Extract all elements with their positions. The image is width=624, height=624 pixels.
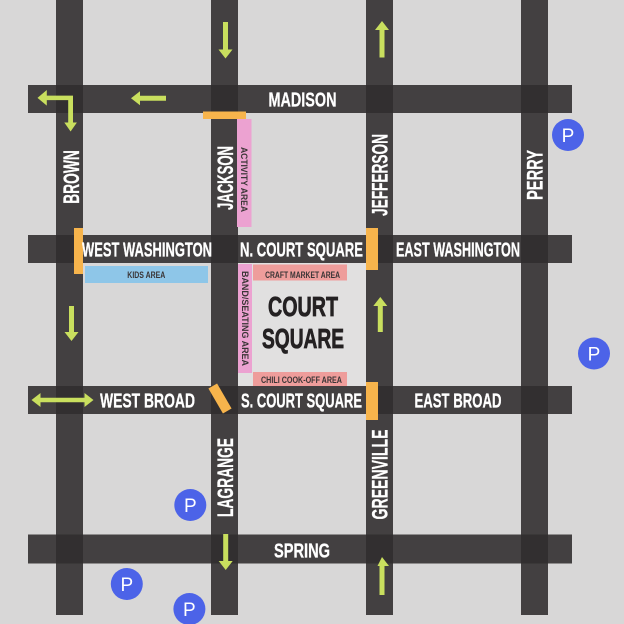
svg-text:BROWN: BROWN (59, 150, 84, 204)
svg-text:CRAFT MARKET AREA: CRAFT MARKET AREA (265, 270, 340, 280)
svg-text:EAST BROAD: EAST BROAD (415, 391, 502, 413)
svg-text:JEFFERSON: JEFFERSON (367, 134, 392, 216)
svg-text:P: P (120, 575, 133, 596)
svg-text:S. COURT SQUARE: S. COURT SQUARE (241, 391, 362, 413)
svg-text:SPRING: SPRING (274, 541, 330, 563)
svg-text:P: P (183, 600, 196, 621)
svg-text:LAGRANGE: LAGRANGE (213, 438, 238, 517)
svg-text:COURT: COURT (268, 291, 338, 322)
svg-text:P: P (588, 344, 601, 365)
svg-text:SQUARE: SQUARE (262, 323, 344, 354)
svg-text:P: P (562, 126, 575, 147)
svg-text:N. COURT SQUARE: N. COURT SQUARE (240, 240, 363, 262)
svg-text:MADISON: MADISON (269, 90, 337, 112)
svg-text:P: P (184, 496, 197, 517)
svg-text:CHILI COOK-OFF AREA: CHILI COOK-OFF AREA (261, 375, 342, 385)
svg-text:JACKSON: JACKSON (213, 146, 238, 210)
svg-text:KIDS AREA: KIDS AREA (127, 270, 165, 280)
svg-text:ACTIVITY AREA: ACTIVITY AREA (239, 147, 249, 212)
svg-text:GREENVILLE: GREENVILLE (367, 430, 392, 520)
svg-text:BAND/SEATING AREA: BAND/SEATING AREA (240, 271, 250, 366)
svg-text:EAST WASHINGTON: EAST WASHINGTON (396, 240, 520, 262)
svg-text:WEST WASHINGTON: WEST WASHINGTON (82, 240, 212, 262)
svg-text:PERRY: PERRY (522, 150, 547, 200)
svg-text:WEST BROAD: WEST BROAD (100, 391, 195, 413)
